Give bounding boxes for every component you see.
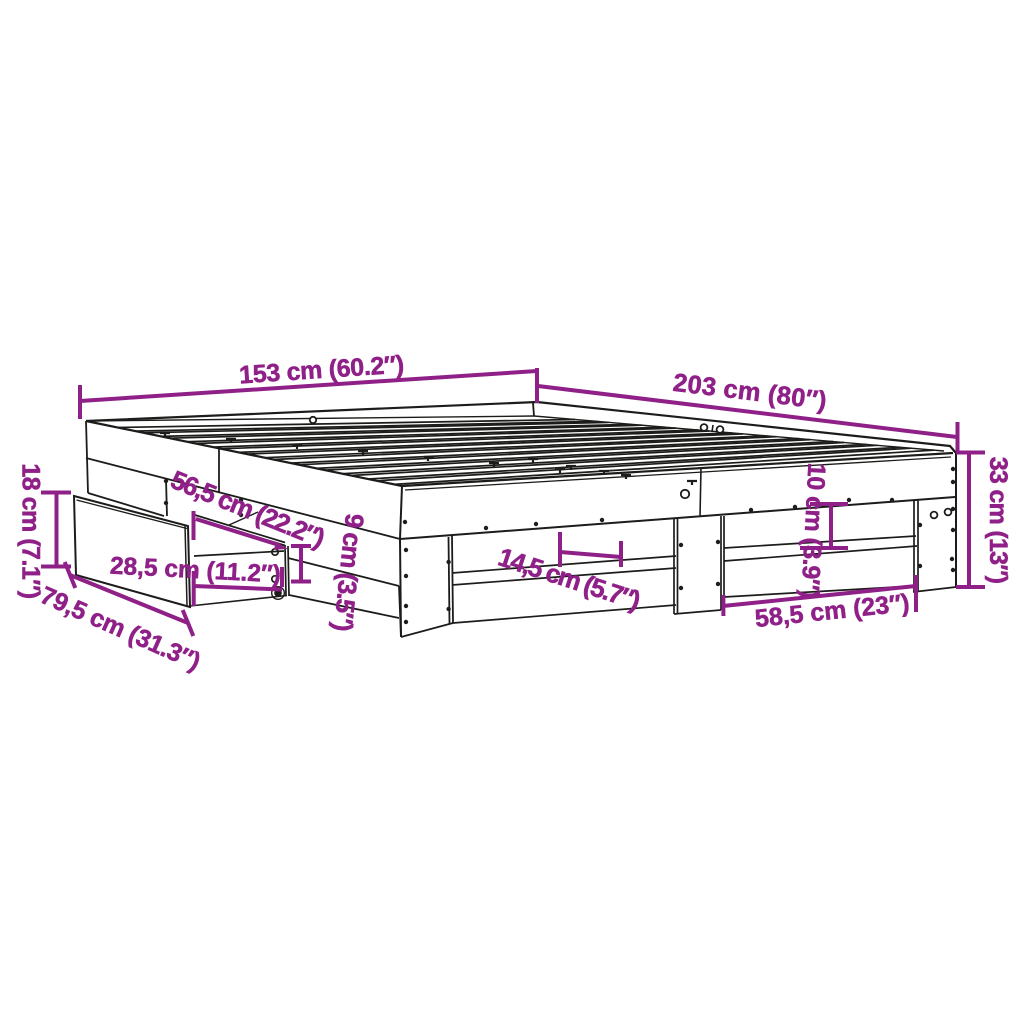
svg-text:18 cm (7.1″): 18 cm (7.1″) (17, 463, 45, 598)
svg-text:33 cm (13″): 33 cm (13″) (984, 457, 1012, 584)
